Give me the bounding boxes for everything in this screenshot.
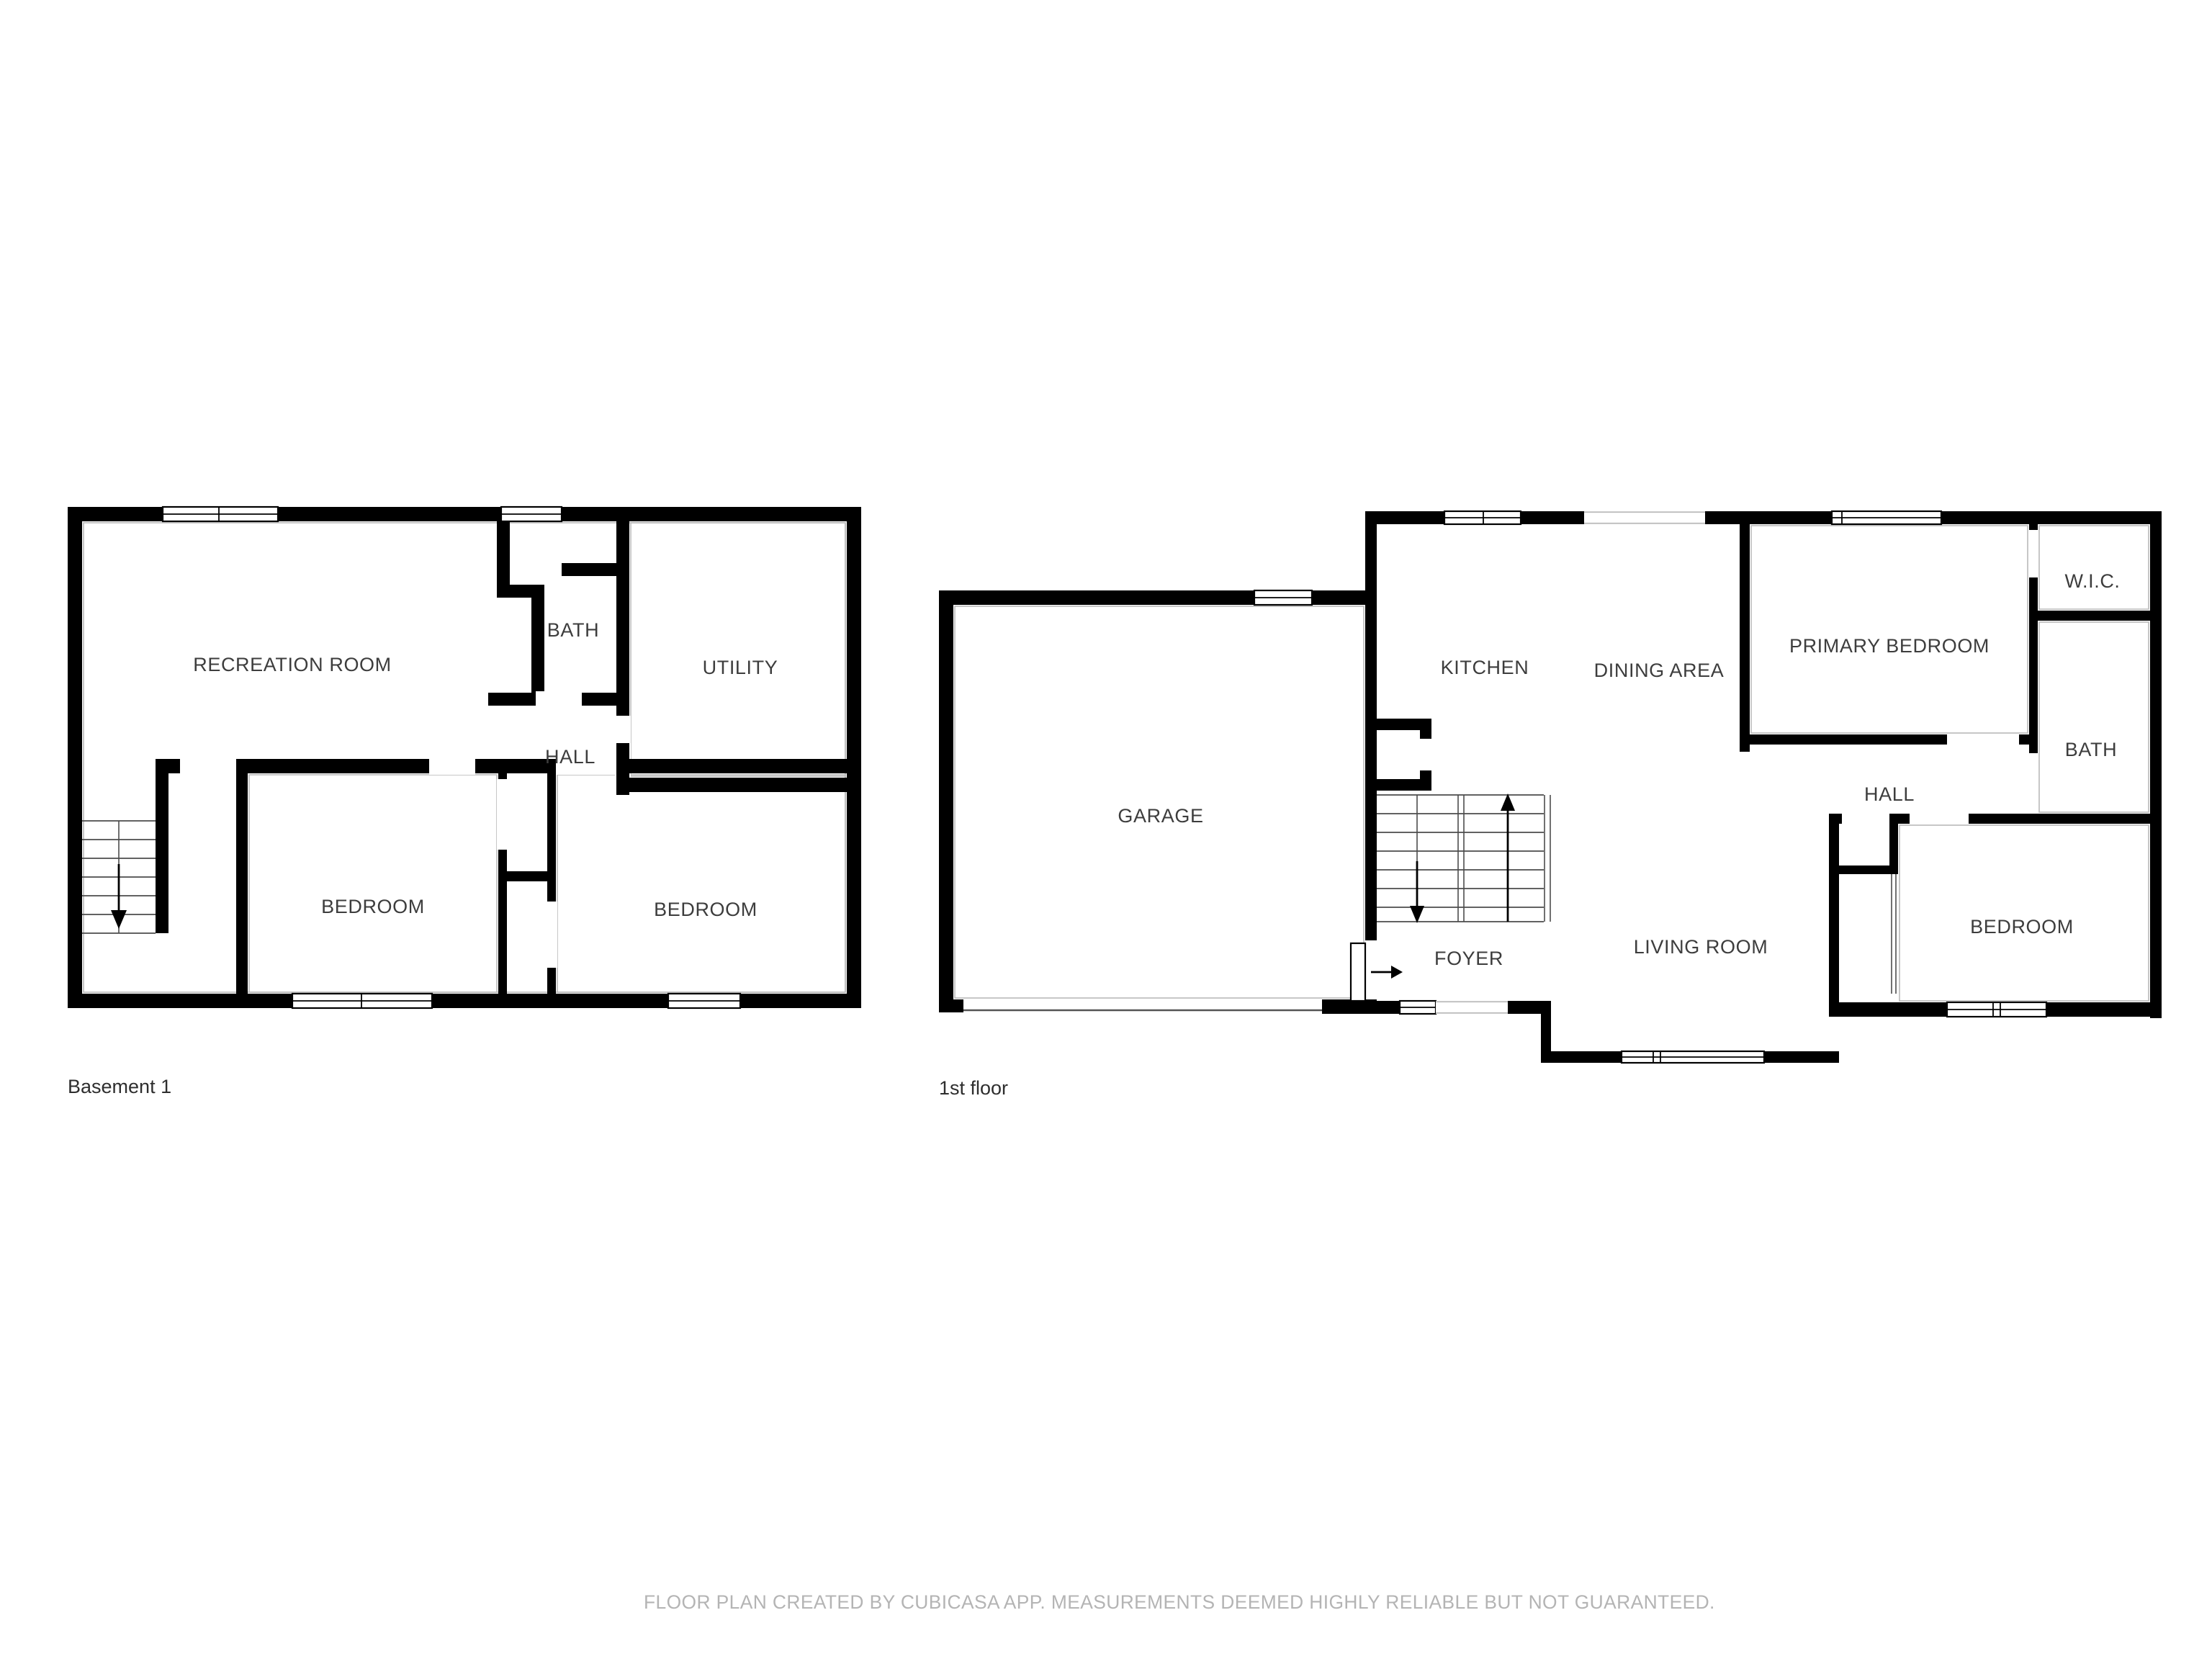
first-floor-label: 1st floor	[939, 1077, 1008, 1099]
room-label-hall-first: HALL	[1864, 783, 1915, 805]
wall-segment	[847, 507, 861, 1008]
wall-segment	[531, 585, 544, 706]
room-label-dining: DINING AREA	[1594, 660, 1725, 681]
first-floor-walls	[939, 511, 2162, 1063]
door-opening	[180, 757, 236, 775]
closet-opening	[546, 902, 557, 968]
room-label-foyer: FOYER	[1434, 948, 1503, 969]
room-outline	[249, 775, 497, 992]
wall-segment	[939, 590, 953, 1012]
wall-segment	[1420, 770, 1431, 779]
wall-segment	[498, 871, 556, 881]
basement-interior-walls	[156, 521, 847, 994]
window-icon	[1832, 511, 1941, 524]
window-icon	[1444, 511, 1521, 524]
window-icon	[163, 507, 278, 521]
room-label-bedroom-first: BEDROOM	[1970, 916, 2074, 938]
door-opening	[1910, 812, 1969, 825]
wall-segment	[616, 743, 629, 778]
room-label-bedroom-basement-left: BEDROOM	[321, 896, 425, 917]
wall-segment	[2029, 611, 2150, 621]
room-label-bedroom-basement-right: BEDROOM	[654, 899, 757, 920]
wall-opening	[1436, 1001, 1508, 1014]
door-opening	[2028, 530, 2039, 577]
basement-plan: RECREATION ROOM BATH UTILITY HALL BEDROO…	[68, 507, 861, 1097]
wall-segment	[68, 994, 861, 1008]
room-label-primary-bedroom: PRIMARY BEDROOM	[1789, 635, 1990, 657]
door-opening	[1947, 733, 2019, 746]
basement-floor-label: Basement 1	[68, 1076, 171, 1097]
door-opening	[429, 757, 475, 775]
room-outline	[1899, 825, 2149, 1001]
wall-segment	[1420, 730, 1431, 739]
window-icon	[1400, 1001, 1436, 1014]
window-icon	[501, 507, 562, 521]
floor-plan-canvas: RECREATION ROOM BATH UTILITY HALL BEDROO…	[0, 0, 2212, 1659]
footer-disclaimer: FLOOR PLAN CREATED BY CUBICASA APP. MEAS…	[644, 1591, 1715, 1613]
room-outline	[2039, 526, 2149, 609]
room-label-wic: W.I.C.	[2064, 570, 2120, 592]
room-label-bath-basement: BATH	[547, 619, 599, 641]
window-icon	[1254, 590, 1312, 605]
closet-opening	[497, 779, 508, 850]
door-opening	[536, 691, 582, 707]
wall-segment	[1365, 779, 1431, 791]
room-outline	[2039, 622, 2149, 812]
room-outline	[1751, 526, 2028, 733]
window-icon	[1622, 1051, 1764, 1063]
stairs-up-arrow-icon	[1501, 793, 1515, 922]
first-floor-plan: GARAGE KITCHEN DINING AREA PRIMARY BEDRO…	[939, 511, 2162, 1099]
wall-segment	[156, 773, 168, 933]
wall-segment	[236, 759, 248, 994]
basement-stairs	[82, 821, 156, 933]
room-outline	[955, 606, 1364, 998]
room-label-living-room: LIVING ROOM	[1634, 936, 1768, 958]
room-label-utility: UTILITY	[703, 657, 778, 678]
window-icon	[1947, 1002, 2046, 1017]
wall-segment	[1740, 521, 1750, 752]
room-label-hall-basement: HALL	[545, 746, 595, 768]
stairs-down-arrow-icon	[111, 864, 127, 929]
wall-segment	[616, 778, 847, 792]
room-label-kitchen: KITCHEN	[1441, 657, 1529, 678]
window-icon	[292, 994, 432, 1008]
wall-segment	[1829, 814, 1839, 1017]
wall-opening	[1584, 511, 1705, 524]
room-outline	[557, 775, 845, 992]
wall-segment	[2150, 511, 2162, 1018]
wall-segment	[1835, 866, 1898, 874]
wall-segment	[1365, 719, 1431, 730]
room-label-bath-first: BATH	[2065, 739, 2117, 760]
door-opening	[1842, 812, 1889, 825]
wall-segment	[68, 507, 82, 1008]
first-floor-stairs	[1377, 793, 1550, 923]
room-label-garage: GARAGE	[1118, 805, 1203, 827]
entry-door-icon	[1351, 943, 1403, 1001]
room-outline	[631, 523, 845, 776]
window-icon	[668, 994, 740, 1008]
wall-segment	[939, 999, 963, 1012]
room-label-recreation: RECREATION ROOM	[193, 654, 392, 675]
thin-partitions	[1892, 874, 1896, 994]
